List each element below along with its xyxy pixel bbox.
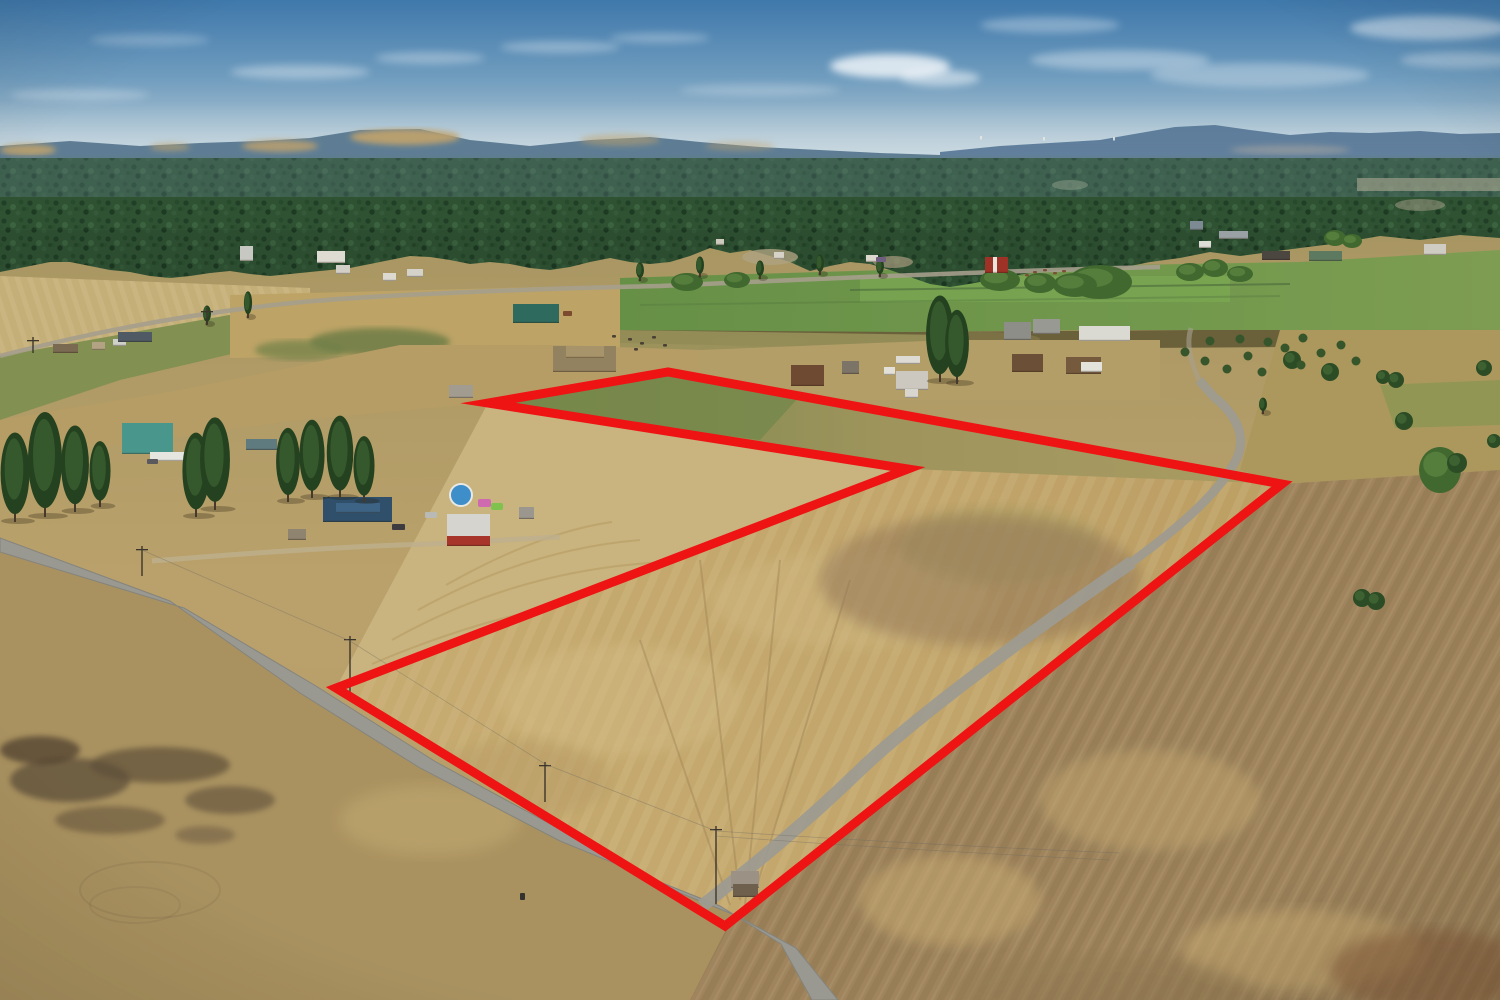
aerial-photo [0, 0, 1500, 1000]
aerial-photo-canvas [0, 0, 1500, 1000]
vignette [0, 0, 1500, 1000]
